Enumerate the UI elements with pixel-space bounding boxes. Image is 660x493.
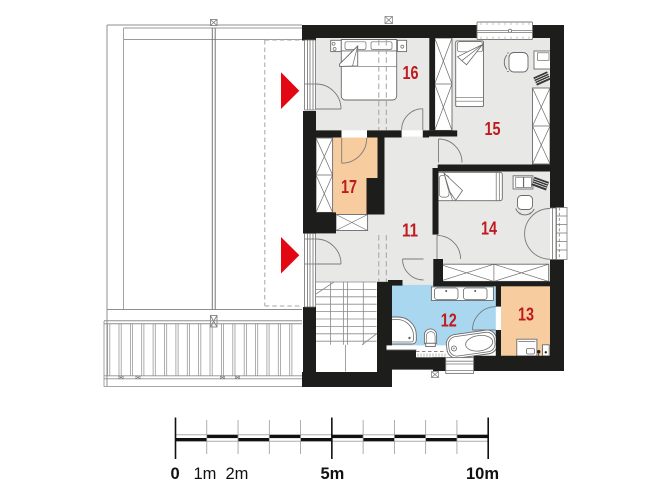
- svg-text:10m: 10m: [466, 465, 499, 483]
- svg-text:17: 17: [341, 176, 357, 197]
- svg-text:11: 11: [402, 219, 418, 240]
- svg-text:2m: 2m: [226, 465, 249, 483]
- svg-text:15: 15: [485, 118, 501, 139]
- svg-text:16: 16: [403, 62, 419, 83]
- svg-text:14: 14: [481, 218, 497, 239]
- svg-text:0: 0: [171, 465, 180, 483]
- svg-text:5m: 5m: [321, 465, 345, 483]
- svg-text:12: 12: [441, 309, 457, 330]
- svg-text:1m: 1m: [194, 465, 217, 483]
- svg-text:13: 13: [518, 303, 534, 324]
